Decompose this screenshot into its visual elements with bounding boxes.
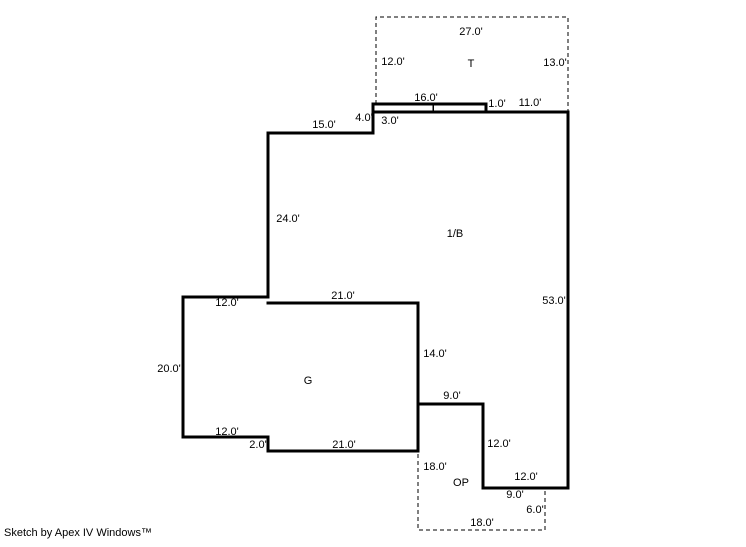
dimension-label: 27.0' <box>459 26 483 38</box>
dimension-label: 4.0' <box>355 112 372 124</box>
dimension-label: 6.0' <box>526 504 543 516</box>
dimension-label: 12.0' <box>487 438 511 450</box>
dimension-label: 12.0' <box>215 297 239 309</box>
dimension-label: 9.0' <box>443 390 460 402</box>
dimension-label: 9.0' <box>506 489 523 501</box>
dimension-label: 21.0' <box>331 290 355 302</box>
area-label-op: OP <box>453 477 469 489</box>
dimension-label: 24.0' <box>276 213 300 225</box>
dimension-label: 18.0' <box>423 461 447 473</box>
dimension-label: 15.0' <box>312 119 336 131</box>
main-outline <box>183 104 568 488</box>
dimension-label: 14.0' <box>423 348 447 360</box>
dimension-label: 20.0' <box>157 363 181 375</box>
garage-division-wall <box>268 303 418 451</box>
dimension-label: 11.0' <box>519 97 542 109</box>
dimension-label: 1.0' <box>488 98 505 110</box>
dimension-label: 16.0' <box>414 92 438 104</box>
dimension-label: 18.0' <box>470 517 494 529</box>
dimension-label: 13.0' <box>543 57 567 69</box>
dimension-label: 53.0' <box>542 295 566 307</box>
area-label-t: T <box>468 58 475 70</box>
dimension-label: 21.0' <box>332 439 356 451</box>
app-credit: Sketch by Apex IV Windows™ <box>4 527 152 539</box>
area-label-1b: 1/B <box>447 228 464 240</box>
dimension-label: 12.0' <box>514 471 538 483</box>
dimension-label: 3.0' <box>381 115 398 127</box>
dimension-label: 2.0' <box>249 439 266 451</box>
sketch-page: 27.0'12.0'13.0'16.0'1.0'11.0'4.0'3.0'15.… <box>0 0 746 547</box>
dimension-label: 12.0' <box>215 426 239 438</box>
dimension-label: 12.0' <box>381 56 405 68</box>
area-label-g: G <box>304 375 313 387</box>
floor-plan-sketch: 27.0'12.0'13.0'16.0'1.0'11.0'4.0'3.0'15.… <box>0 0 746 547</box>
